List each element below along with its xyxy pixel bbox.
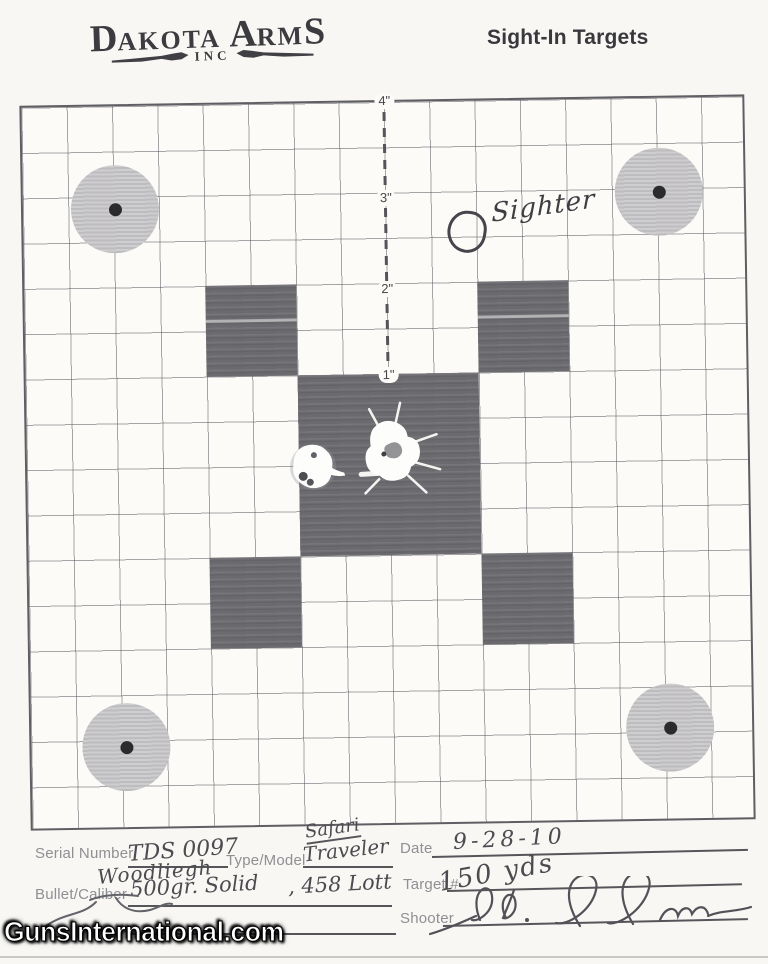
- rifle-right-icon: [235, 47, 313, 62]
- scan-paper-edge: [0, 956, 768, 958]
- bullet-holes-overlay: [21, 96, 757, 832]
- bullet-hole-center: [360, 402, 440, 493]
- serial-number-label: Serial Number: [35, 845, 133, 862]
- type-model-line: [303, 866, 393, 868]
- date-label: Date: [400, 840, 433, 857]
- type-model-label: Type/Model: [226, 852, 306, 869]
- shooter-signature: [428, 876, 753, 938]
- guns-international-watermark: GunsInternational.com: [4, 916, 284, 948]
- bullet-caliber-value: , 458 Lott: [287, 869, 392, 898]
- rifle-left-icon: [111, 51, 189, 66]
- bullet-hole-left: [290, 444, 346, 491]
- target-grid: 4" 3" 2" 1" Sighter: [19, 94, 755, 830]
- scanned-sight-in-target-page: DAKOTA ARMS INC Sight-In Targets 4" 3" 2…: [0, 0, 768, 964]
- logo-inc-label: INC: [194, 48, 230, 65]
- page-title: Sight-In Targets: [487, 26, 648, 50]
- dakota-arms-logo: DAKOTA ARMS INC: [89, 12, 343, 69]
